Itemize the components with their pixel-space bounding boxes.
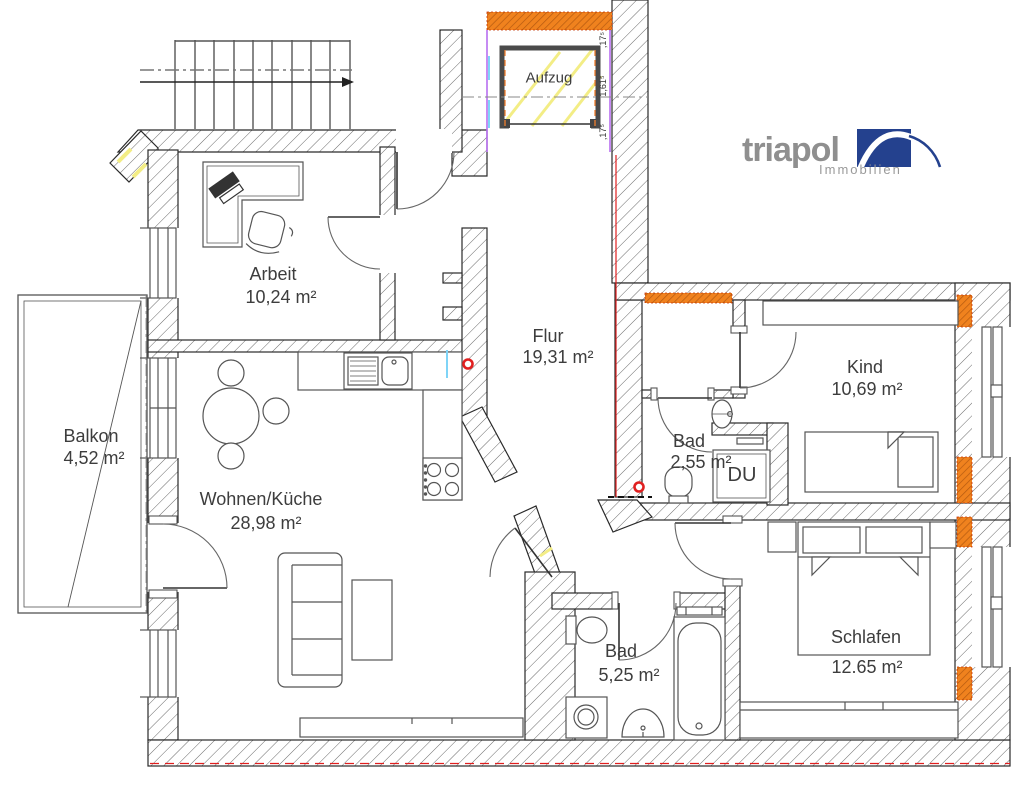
dim-wall-top: ,17⁵ — [598, 32, 608, 48]
detector-marker — [464, 360, 473, 369]
logo-swoosh-tail — [909, 136, 940, 167]
label-shower-du: DU — [728, 465, 757, 485]
toilet-bad-icon — [566, 616, 607, 644]
label-arbeit-name: Arbeit — [249, 265, 296, 283]
label-aufzug: Aufzug — [526, 71, 573, 86]
label-wohnen-area: 28,98 m² — [230, 514, 301, 532]
wardrobe-schlafen-icon — [740, 702, 958, 738]
label-balkon-name: Balkon — [63, 427, 118, 445]
dining-table-icon — [203, 360, 289, 469]
label-kind-area: 10,69 m² — [831, 380, 902, 398]
label-bad-gross-name: Bad — [605, 642, 637, 660]
label-arbeit-area: 10,24 m² — [245, 288, 316, 306]
sink-klein-icon — [712, 400, 732, 428]
floor-plan-page: Aufzug Arbeit 10,24 m² Flur 19,31 m² Kin… — [0, 0, 1024, 790]
sideboard-icon — [300, 718, 523, 737]
sofa-icon — [278, 553, 342, 687]
nightstand-left-icon — [768, 522, 796, 552]
stair-direction-arrow — [140, 77, 354, 87]
dim-shaft-height: 1,61⁵ — [598, 75, 608, 96]
logo-tagline-text: Immobilien — [819, 163, 902, 176]
label-wohnen-name: Wohnen/Küche — [200, 490, 323, 508]
label-schlafen-area: 12.65 m² — [831, 658, 902, 676]
bath-sink-icon — [622, 709, 664, 737]
staircase — [140, 40, 354, 129]
stove-icon — [423, 458, 462, 500]
label-flur-area: 19,31 m² — [522, 348, 593, 366]
label-schlafen-name: Schlafen — [831, 628, 901, 646]
dim-wall-bottom: ,17⁵ — [598, 124, 608, 140]
wardrobe-kind-icon — [763, 301, 958, 325]
label-flur-name: Flur — [533, 327, 564, 345]
washing-machine-icon — [566, 697, 607, 738]
label-bad-gross-area: 5,25 m² — [598, 666, 659, 684]
kitchen-sink-icon — [344, 353, 412, 389]
label-kind-name: Kind — [847, 358, 883, 376]
office-chair-icon — [245, 210, 296, 259]
label-balkon-area: 4,52 m² — [63, 449, 124, 467]
nightstand-right-icon — [930, 522, 956, 548]
label-bad-klein-area: 2,55 m² — [670, 453, 731, 471]
coffee-table-icon — [352, 580, 392, 660]
label-bad-klein-name: Bad — [673, 432, 705, 450]
detector-marker — [635, 483, 644, 492]
bathtub-icon — [674, 607, 725, 740]
bed-kind-icon — [805, 432, 938, 492]
toilet-klein-icon — [665, 467, 692, 503]
